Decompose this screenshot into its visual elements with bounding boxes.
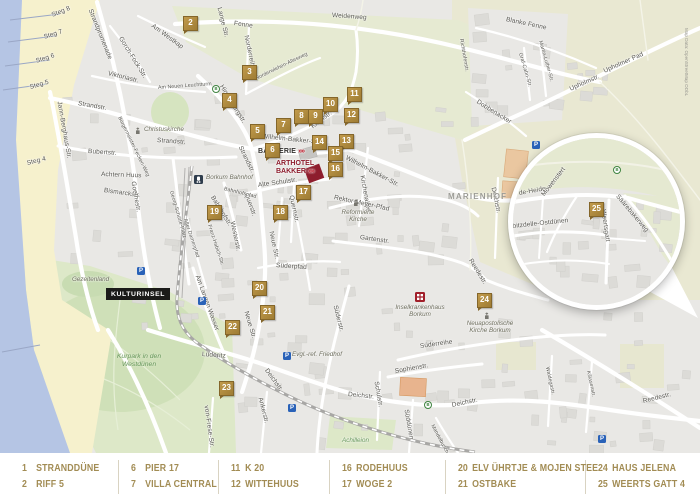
legend-group-4: 16RODEHUUS17WOGE 2 [329,460,444,494]
inset-labels-layer: de-HeideMöwenstertSäärebakerwegKiebitzde… [513,138,680,305]
legend-group-2: 6PIER 177VILLA CENTRAL [118,460,218,494]
legend-entry-label: WOGE 2 [356,477,392,493]
street-label: Kiebitzdelle-Ostdünen [508,217,569,231]
legend-bar: 1STRANDDÜNE2RIFF 56PIER 177VILLA CENTRAL… [0,453,700,500]
legend-entry-number: 17 [342,477,354,493]
legend-entry-label: VILLA CENTRAL [145,477,217,493]
legend-entry: 17WOGE 2 [342,477,432,493]
legend-entry-label: K 20 [245,461,264,477]
magnifier-inset[interactable]: de-HeideMöwenstertSäärebakerwegKiebitzde… [508,133,685,310]
legend-entry-label: WITTEHUUS [245,477,299,493]
legend-entry: 7VILLA CENTRAL [131,477,208,493]
legend-entry-label: STRANDDÜNE [36,461,99,477]
legend-entry-number: 21 [458,477,470,493]
legend-entry: 25WEERTS GATT 4 [598,477,688,493]
legend-entry-label: ELV ÜHRTJE & MOJEN STEE [472,461,598,477]
legend-entry-label: PIER 17 [145,461,179,477]
legend-entry-number: 12 [231,477,243,493]
legend-entry-number: 20 [458,461,470,477]
legend-group-3: 11K 2012WITTEHUUS [218,460,330,494]
bus-stop-icon: B [613,166,621,174]
legend-entry: 24HAUS JELENA [598,461,688,477]
legend-entry-number: 11 [231,461,243,477]
legend-entry-number: 1 [22,461,34,477]
legend-entry: 20ELV ÜHRTJE & MOJEN STEE [458,461,570,477]
legend-entry: 11K 20 [231,461,318,477]
legend-entry: 16RODEHUUS [342,461,432,477]
street-label: Säärebakerweg [614,193,649,233]
legend-entry: 6PIER 17 [131,461,208,477]
legend-group-6: 24HAUS JELENA25WEERTS GATT 4 [585,460,700,494]
legend-entry-label: WEERTS GATT 4 [612,477,685,493]
legend-entry-number: 16 [342,461,354,477]
legend-entry-label: HAUS JELENA [612,461,676,477]
legend-entry-label: RIFF 5 [36,477,64,493]
borkum-hotel-map: WeidenwegSteg 8Steg 7Steg 6Steg 5Steg 4S… [0,0,700,500]
map-marker-25[interactable]: 25 [589,202,604,217]
legend-entry: 1STRANDDÜNE [22,461,106,477]
legend-group-1: 1STRANDDÜNE2RIFF 5 [22,460,118,494]
legend-entry: 21OSTBAKE [458,477,570,493]
street-label: Möwenstert [540,166,567,198]
legend-entry: 2RIFF 5 [22,477,106,493]
map-canvas[interactable]: WeidenwegSteg 8Steg 7Steg 6Steg 5Steg 4S… [0,0,700,453]
legend-entry-number: 24 [598,461,610,477]
legend-entry-number: 2 [22,477,34,493]
legend-entry-label: OSTBAKE [472,477,516,493]
legend-entry-label: RODEHUUS [356,461,408,477]
legend-entry-number: 7 [131,477,143,493]
legend-entry: 12WITTEHUUS [231,477,318,493]
legend-entry-number: 25 [598,477,610,493]
legend-group-5: 20ELV ÜHRTJE & MOJEN STEE21OSTBAKE [445,460,585,494]
legend-entry-number: 6 [131,461,143,477]
